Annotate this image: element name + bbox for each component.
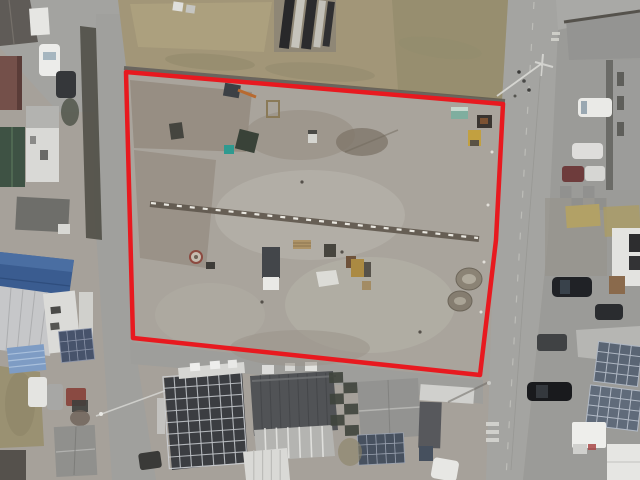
small-structure [172, 1, 183, 11]
shed-white-bit [58, 224, 70, 234]
screenshot-root [0, 0, 640, 480]
roof-vent [190, 363, 201, 372]
weeds-clump [338, 438, 362, 466]
clutter-dark [206, 262, 215, 269]
lumber-stack [293, 240, 311, 249]
stake-marker [480, 311, 483, 314]
car-black-suv [527, 382, 572, 401]
pedestrian [514, 95, 517, 98]
debris [418, 330, 421, 333]
skylight-stripes [322, 426, 323, 457]
shrub-checker-cell [345, 425, 359, 436]
awning-white [243, 448, 290, 480]
skylight-stripes [288, 427, 289, 458]
crosswalk-mark [486, 430, 499, 434]
debris [260, 300, 263, 303]
debris [300, 180, 303, 183]
van-glass [581, 101, 587, 114]
well-brown [480, 118, 488, 124]
shrub-checker-cell [344, 404, 358, 415]
hay-patch [565, 204, 600, 228]
tarp-teal-edge [451, 107, 468, 111]
car-darkred [562, 166, 584, 182]
car-glass [560, 280, 570, 294]
car-gray [47, 384, 63, 410]
solar-black [629, 234, 640, 252]
deck-brown [609, 276, 625, 294]
window-dark [50, 322, 60, 330]
pallet [362, 281, 371, 290]
car-white [572, 143, 603, 159]
window-dark [617, 122, 624, 136]
building-right-wall [606, 60, 613, 190]
pedestrian [527, 88, 531, 92]
roof-vent [262, 365, 274, 374]
grass-light-patch [130, 2, 272, 52]
car-dark [56, 71, 76, 98]
pavement-checker-cell [583, 186, 595, 198]
window-dark [617, 96, 624, 110]
truck-bed [262, 247, 280, 278]
solar-panel-small [419, 446, 433, 461]
shrub-checker-cell [330, 415, 344, 426]
pedestrian [522, 79, 526, 83]
window-dark [30, 136, 36, 144]
car-black [552, 277, 592, 297]
car-glass [536, 385, 548, 398]
shrub-checker-cell [343, 382, 357, 393]
aerial-photo-svg [0, 0, 640, 480]
crosswalk-mark [552, 32, 560, 35]
gravel-mound [336, 128, 388, 156]
window-dark [617, 72, 624, 86]
crosswalk-mark [551, 38, 559, 41]
posts-dark [364, 262, 371, 277]
van-white [28, 377, 47, 407]
building-maroon-edge [17, 56, 22, 110]
stake-marker [487, 204, 490, 207]
machine-yellow [351, 259, 364, 277]
van-dark [537, 334, 567, 351]
equipment-dark [169, 122, 184, 140]
machine-teal [224, 145, 234, 154]
carport-white [29, 7, 50, 35]
truck-red-detail [588, 444, 596, 450]
car-dark [138, 451, 162, 471]
pavement-checker-cell [560, 186, 572, 198]
crosswalk-mark [486, 438, 499, 442]
house-white-roof [26, 106, 59, 128]
clutter-pile [70, 410, 90, 426]
roof-vent [228, 360, 238, 369]
sign-top [308, 130, 317, 134]
truck-cab-white [263, 277, 279, 290]
shrub-checker-cell [330, 393, 344, 404]
wall-white [157, 398, 165, 434]
roof-vent [210, 361, 221, 370]
dirt-brown-patch [245, 110, 355, 160]
house-roof-dark2 [0, 450, 26, 480]
crosswalk-mark [486, 422, 499, 426]
bush [61, 98, 79, 126]
stake-marker [483, 261, 486, 264]
house-roof-darkgray [418, 402, 442, 449]
pit-center [462, 274, 476, 284]
equipment-dark [324, 244, 336, 257]
stake-marker [491, 151, 494, 154]
car-white [585, 166, 605, 181]
pole [487, 381, 491, 385]
car-glass [43, 52, 56, 60]
solar-black [629, 256, 640, 270]
pit-center [454, 297, 466, 305]
solar-panel [357, 433, 405, 465]
hose-coil-center [194, 255, 198, 259]
pedestrian [517, 70, 521, 74]
car-black [595, 304, 623, 320]
window-dark [50, 306, 61, 314]
skylight-stripes [311, 426, 312, 457]
small-structure [185, 4, 195, 13]
truck-cab [573, 444, 587, 454]
shrub-checker-cell [329, 372, 343, 383]
building-right-edge [612, 60, 640, 190]
tarp-white [316, 270, 339, 287]
debris [340, 250, 343, 253]
skylight-stripes [299, 427, 300, 458]
window-dark [40, 150, 48, 160]
machine-dark-part [470, 140, 479, 146]
pole [99, 412, 103, 416]
